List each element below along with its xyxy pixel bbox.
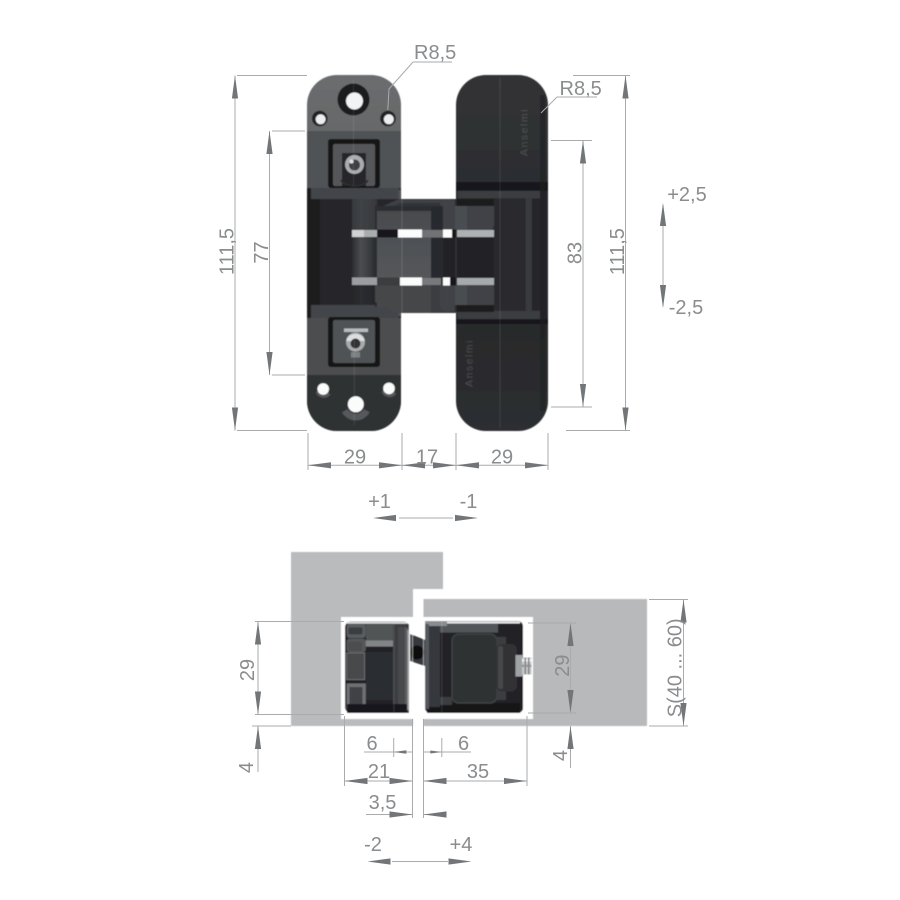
- svg-text:77: 77: [251, 241, 273, 263]
- svg-text:-2,5: -2,5: [669, 297, 703, 319]
- svg-text:6: 6: [366, 733, 377, 755]
- svg-text:111,5: 111,5: [607, 228, 629, 275]
- svg-text:Anselmi: Anselmi: [519, 108, 531, 156]
- svg-text:29: 29: [552, 654, 574, 676]
- svg-text:29: 29: [237, 659, 259, 681]
- svg-text:83: 83: [565, 242, 587, 264]
- svg-text:+4: +4: [450, 834, 473, 856]
- svg-text:21: 21: [368, 761, 390, 783]
- svg-text:29: 29: [344, 447, 366, 469]
- svg-text:3,5: 3,5: [369, 792, 397, 814]
- svg-text:-1: -1: [460, 491, 478, 513]
- svg-text:4: 4: [550, 750, 572, 761]
- svg-text:+2,5: +2,5: [667, 184, 706, 206]
- svg-text:111,5: 111,5: [217, 228, 239, 275]
- svg-text:29: 29: [491, 447, 513, 469]
- svg-text:17: 17: [416, 447, 438, 469]
- svg-text:Anselmi: Anselmi: [464, 339, 476, 387]
- svg-text:R8,5: R8,5: [414, 42, 456, 64]
- svg-text:4: 4: [236, 762, 258, 773]
- svg-text:S(40 ... 60): S(40 ... 60): [665, 618, 687, 717]
- svg-text:35: 35: [467, 761, 489, 783]
- svg-text:+1: +1: [368, 491, 391, 513]
- svg-text:6: 6: [458, 733, 469, 755]
- svg-text:-2: -2: [364, 834, 382, 856]
